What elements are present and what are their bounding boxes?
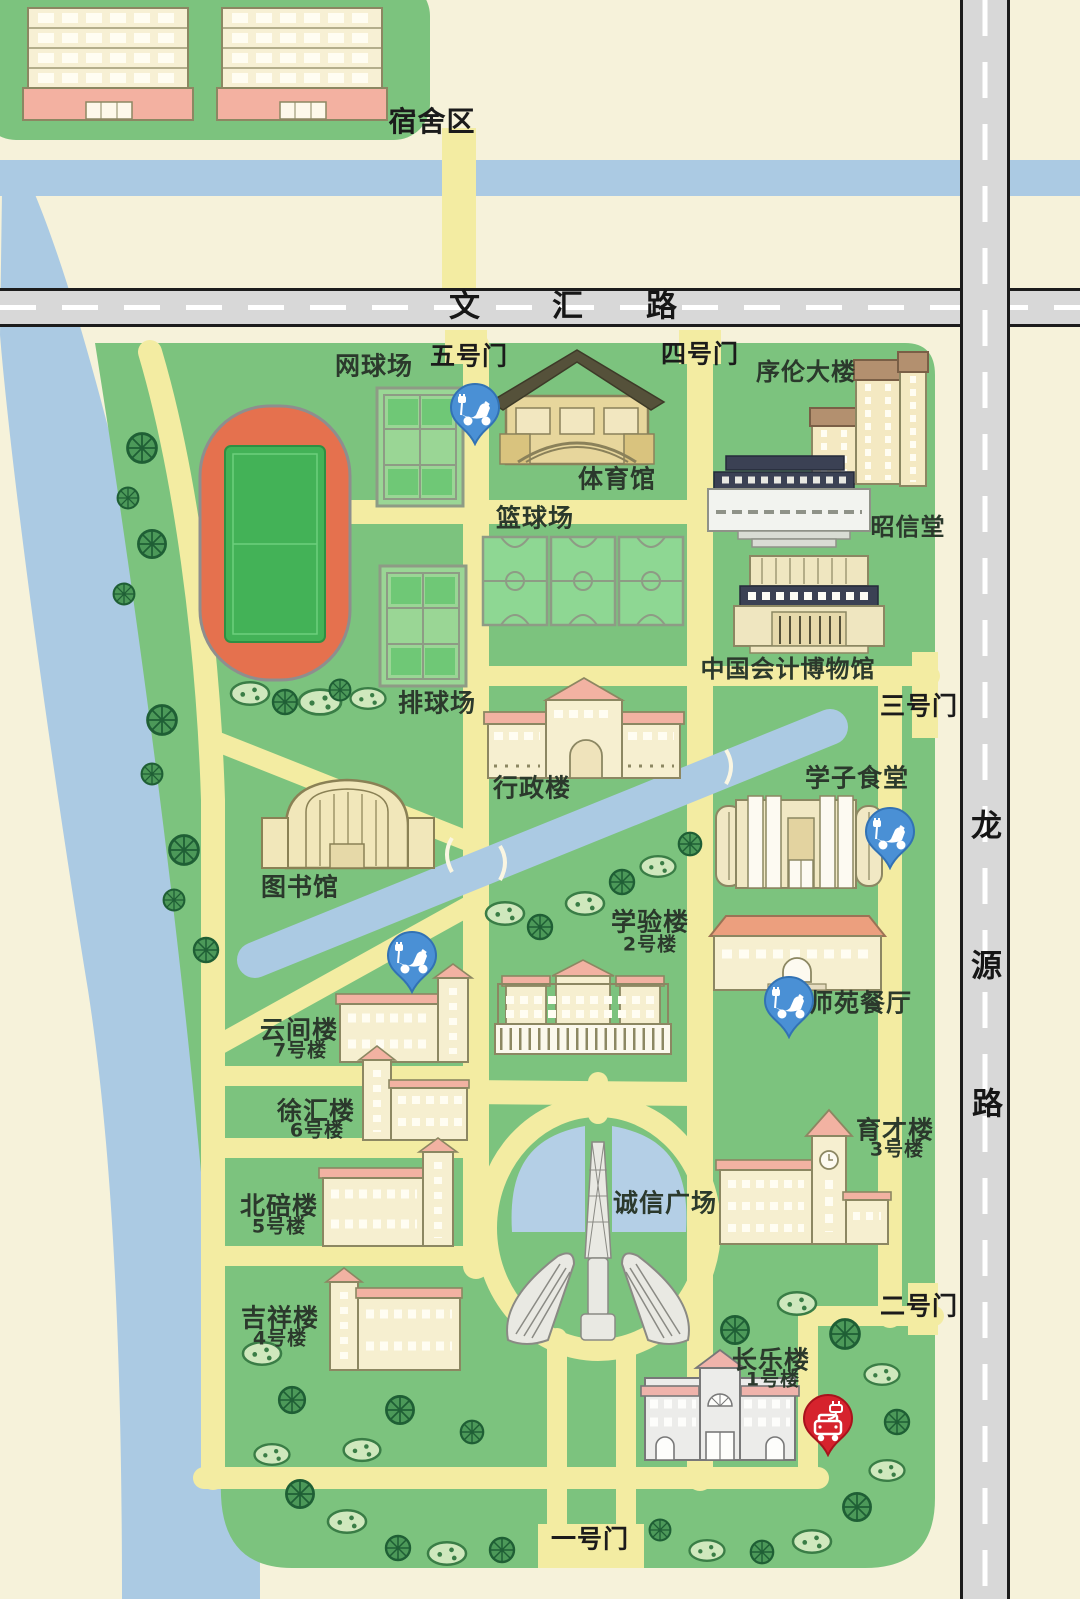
map-pin-scooter-2[interactable]	[864, 806, 916, 870]
label-accounting-museum: 中国会计博物馆	[701, 657, 876, 681]
map-pin-car-5[interactable]	[802, 1393, 854, 1457]
label-yucai-no: 3号楼	[870, 1141, 924, 1160]
label-gymnasium: 体育馆	[578, 467, 656, 492]
label-gate-1: 一号门	[551, 1527, 629, 1552]
label-road-wenhui-1: 文	[449, 292, 481, 323]
label-library: 图书馆	[261, 875, 339, 900]
label-road-wenhui-3: 路	[646, 292, 678, 323]
label-xueyan-no: 2号楼	[623, 936, 677, 955]
scooter-pin-icon	[386, 930, 438, 994]
map-pin-scooter-3[interactable]	[386, 930, 438, 994]
label-xuhui-no: 6号楼	[290, 1122, 344, 1141]
label-volleyball-courts: 排球场	[398, 691, 476, 716]
label-jixiang-no: 4号楼	[253, 1330, 307, 1349]
scooter-pin-icon	[763, 975, 815, 1039]
label-road-longyuan-3: 路	[972, 1090, 1004, 1121]
label-xueyan-building: 学验楼	[611, 910, 689, 935]
ev-car-pin-icon	[802, 1393, 854, 1457]
label-changle-no: 1号楼	[746, 1371, 800, 1390]
label-xuezi-canteen: 学子食堂	[805, 766, 909, 791]
label-beibei-no: 5号楼	[252, 1218, 306, 1237]
label-basketball-courts: 篮球场	[496, 506, 574, 531]
label-gate-2: 二号门	[880, 1294, 958, 1319]
label-road-longyuan-2: 源	[971, 952, 1003, 983]
label-admin-building: 行政楼	[493, 776, 571, 801]
label-zhaoxin-hall: 昭信堂	[871, 515, 946, 539]
label-road-wenhui-2: 汇	[552, 292, 584, 323]
label-shiyuan-restaurant: 师苑餐厅	[808, 991, 912, 1016]
label-road-longyuan-1: 龙	[971, 812, 1003, 843]
campus-map: 宿舍区文汇路龙源路五号门四号门三号门二号门一号门网球场体育馆篮球场排球场序伦大楼…	[0, 0, 1080, 1599]
map-pin-scooter-4[interactable]	[763, 975, 815, 1039]
map-pin-scooter-1[interactable]	[449, 382, 501, 446]
scooter-pin-icon	[449, 382, 501, 446]
label-tennis-courts: 网球场	[335, 354, 413, 379]
label-xulun-building: 序伦大楼	[756, 360, 856, 384]
label-gate-5: 五号门	[430, 344, 508, 369]
label-yunjian-no: 7号楼	[273, 1042, 327, 1061]
label-gate-4: 四号门	[661, 342, 739, 367]
label-gate-3: 三号门	[880, 694, 958, 719]
label-dorm-area: 宿舍区	[388, 108, 475, 136]
label-layer: 宿舍区文汇路龙源路五号门四号门三号门二号门一号门网球场体育馆篮球场排球场序伦大楼…	[0, 0, 1080, 1599]
label-chengxin-square: 诚信广场	[613, 1191, 717, 1216]
scooter-pin-icon	[864, 806, 916, 870]
